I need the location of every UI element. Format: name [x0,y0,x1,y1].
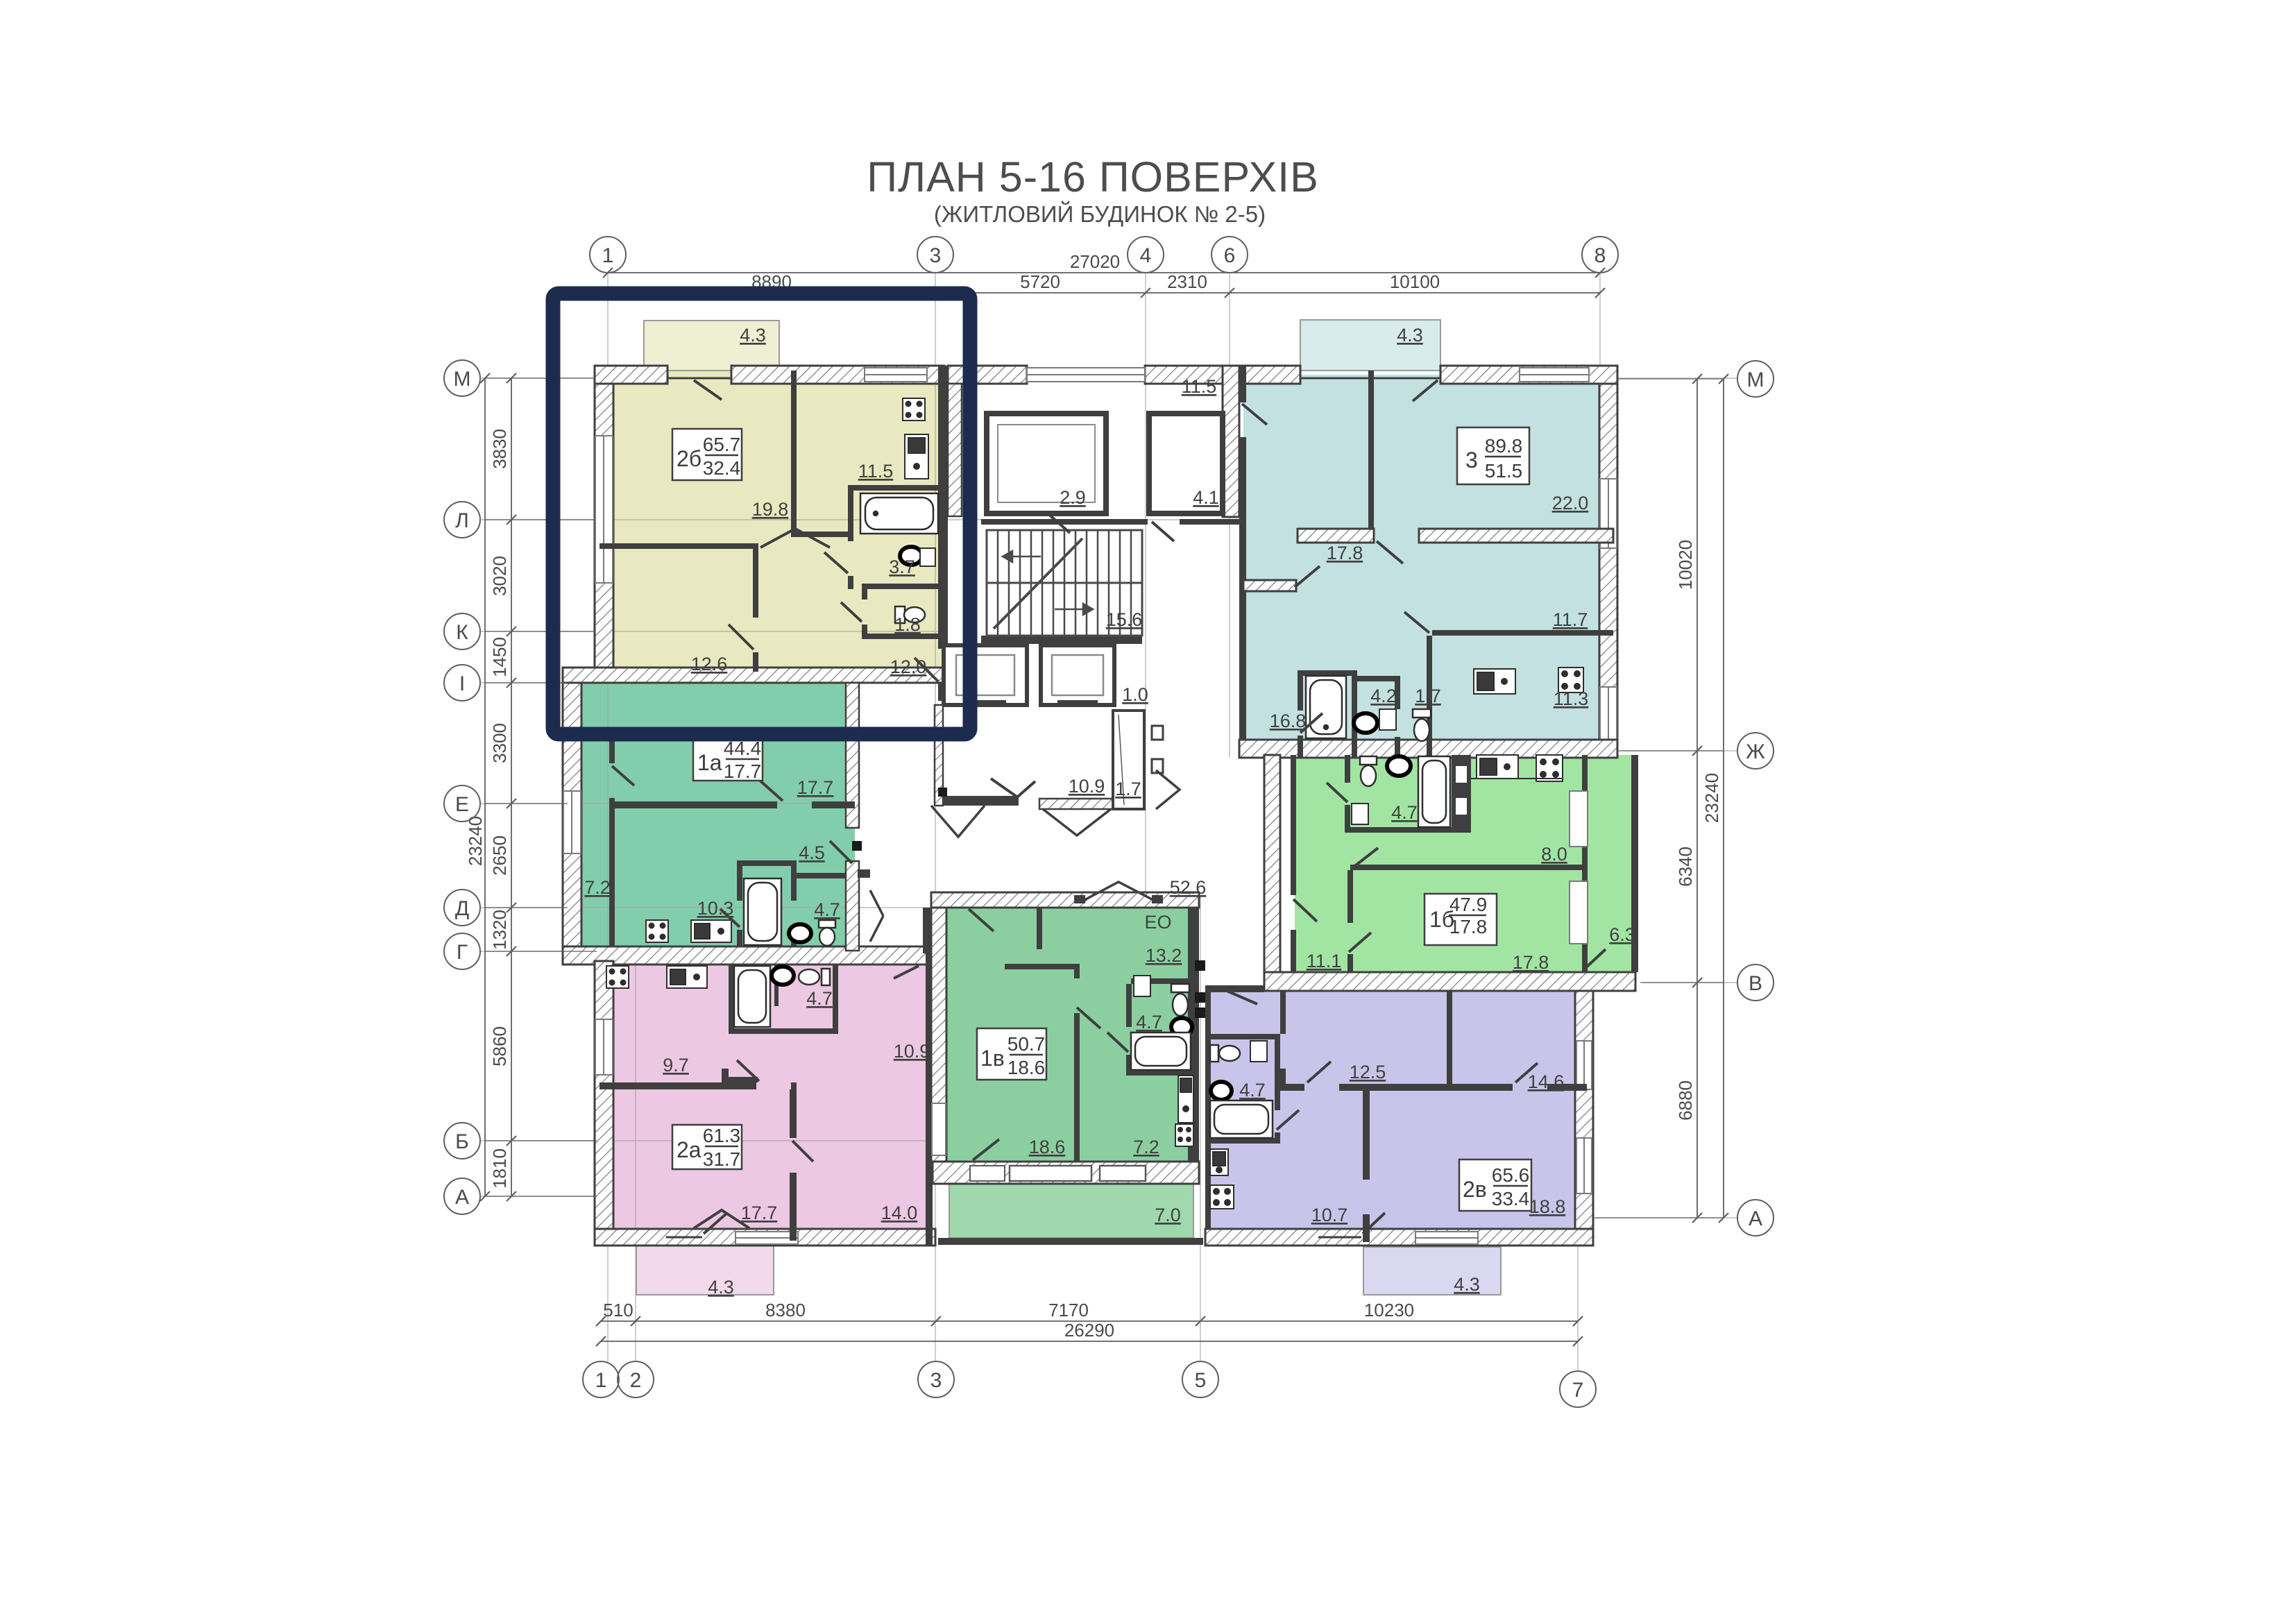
svg-text:11.1: 11.1 [1307,951,1342,971]
svg-text:4.3: 4.3 [708,1277,734,1298]
svg-text:3: 3 [930,244,942,267]
svg-text:4.3: 4.3 [1397,325,1423,346]
svg-text:11.5: 11.5 [1182,376,1217,397]
svg-text:Д: Д [455,897,469,920]
svg-text:В: В [1749,972,1762,995]
svg-text:1450: 1450 [489,637,510,677]
svg-text:4.2: 4.2 [1370,686,1397,706]
svg-text:17.8: 17.8 [1327,543,1363,563]
svg-text:3.7: 3.7 [889,556,915,577]
svg-text:10.7: 10.7 [1311,1205,1348,1225]
svg-text:Ж: Ж [1746,740,1765,763]
svg-text:1.7: 1.7 [1115,779,1141,799]
svg-text:65.7: 65.7 [703,434,741,455]
svg-text:3: 3 [1465,448,1478,473]
svg-text:32.4: 32.4 [703,457,741,479]
svg-text:18.8: 18.8 [1529,1196,1566,1217]
svg-text:26290: 26290 [1064,1320,1114,1341]
svg-text:52.6: 52.6 [1170,877,1207,898]
svg-text:16.8: 16.8 [1270,711,1307,731]
svg-text:6340: 6340 [1675,847,1696,887]
svg-text:Б: Б [455,1130,469,1153]
svg-text:4.7: 4.7 [1391,802,1418,823]
svg-text:89.8: 89.8 [1485,435,1523,457]
svg-text:10230: 10230 [1364,1300,1414,1320]
svg-text:2650: 2650 [489,835,510,876]
svg-text:2б: 2б [677,446,701,471]
svg-text:1810: 1810 [489,1148,510,1189]
svg-text:Г: Г [457,941,468,964]
svg-text:Е: Е [455,793,469,816]
svg-text:9.7: 9.7 [663,1055,689,1076]
svg-text:17.7: 17.7 [724,760,762,782]
svg-text:2: 2 [630,1369,642,1392]
svg-text:(ЖИТЛОВИЙ БУДИНОК № 2-5): (ЖИТЛОВИЙ БУДИНОК № 2-5) [934,201,1266,227]
svg-text:12.0: 12.0 [890,656,927,677]
svg-text:14.0: 14.0 [881,1203,918,1223]
svg-text:65.6: 65.6 [1492,1164,1530,1186]
svg-text:4.1: 4.1 [1193,487,1219,508]
svg-text:47.9: 47.9 [1449,894,1488,915]
svg-text:1.0: 1.0 [1122,684,1148,705]
svg-text:2310: 2310 [1167,271,1207,292]
svg-text:5: 5 [1195,1369,1207,1392]
svg-text:3020: 3020 [489,556,510,596]
svg-text:5860: 5860 [489,1026,510,1067]
svg-text:1.8: 1.8 [894,614,921,635]
svg-text:10.9: 10.9 [1069,776,1105,797]
svg-text:8: 8 [1595,244,1606,267]
svg-text:27020: 27020 [1070,251,1120,272]
svg-text:М: М [1747,368,1764,391]
svg-text:7.0: 7.0 [1155,1205,1181,1225]
svg-text:1320: 1320 [489,910,510,950]
svg-text:І: І [459,672,465,695]
svg-text:8380: 8380 [765,1300,806,1320]
svg-text:4.5: 4.5 [799,842,825,863]
svg-text:4.7: 4.7 [806,988,833,1009]
svg-text:31.7: 31.7 [703,1148,741,1170]
svg-text:2а: 2а [677,1137,701,1162]
svg-text:4.7: 4.7 [1136,1012,1162,1033]
svg-text:50.7: 50.7 [1007,1033,1046,1055]
svg-text:6.3: 6.3 [1609,924,1635,945]
svg-text:12.6: 12.6 [691,654,728,674]
svg-text:23240: 23240 [465,816,486,866]
svg-text:17.7: 17.7 [797,777,834,798]
svg-text:15.6: 15.6 [1106,609,1143,630]
svg-text:4: 4 [1140,244,1152,267]
svg-text:11.5: 11.5 [858,461,894,482]
svg-text:6: 6 [1224,244,1236,267]
svg-text:2.9: 2.9 [1060,487,1086,508]
svg-text:7.2: 7.2 [1133,1137,1159,1157]
svg-text:10020: 10020 [1675,540,1696,590]
svg-text:1: 1 [602,244,614,267]
svg-text:5720: 5720 [1020,271,1060,292]
svg-text:К: К [456,621,468,644]
svg-text:7170: 7170 [1048,1300,1089,1320]
svg-text:ЕО: ЕО [1144,912,1171,933]
svg-text:3830: 3830 [489,429,510,469]
svg-text:17.7: 17.7 [741,1203,778,1223]
svg-text:19.8: 19.8 [752,499,789,520]
svg-text:3: 3 [930,1369,942,1392]
svg-text:18.6: 18.6 [1007,1057,1046,1078]
svg-text:6880: 6880 [1675,1080,1696,1121]
svg-text:17.8: 17.8 [1449,916,1488,937]
svg-text:4.3: 4.3 [740,325,766,346]
svg-text:17.8: 17.8 [1513,952,1549,973]
svg-text:4.3: 4.3 [1454,1274,1480,1295]
svg-text:1: 1 [595,1369,607,1392]
svg-text:1а: 1а [697,750,722,775]
svg-text:Л: Л [455,509,469,532]
svg-text:1.7: 1.7 [1415,686,1441,706]
svg-text:12.5: 12.5 [1350,1062,1386,1082]
svg-text:11.7: 11.7 [1553,609,1588,630]
svg-text:4.7: 4.7 [1239,1080,1266,1101]
svg-text:51.5: 51.5 [1485,460,1523,482]
svg-text:10100: 10100 [1390,271,1440,292]
svg-text:7.2: 7.2 [584,877,611,898]
svg-text:3300: 3300 [489,723,510,763]
svg-text:А: А [1749,1207,1762,1230]
svg-text:ПЛАН 5-16 ПОВЕРХІВ: ПЛАН 5-16 ПОВЕРХІВ [867,153,1319,201]
svg-text:1в: 1в [980,1046,1005,1071]
svg-text:4.7: 4.7 [814,899,840,920]
svg-text:8.0: 8.0 [1541,844,1567,865]
svg-text:61.3: 61.3 [703,1125,741,1146]
svg-text:7: 7 [1572,1379,1584,1402]
svg-text:18.6: 18.6 [1029,1137,1066,1157]
svg-text:10.9: 10.9 [894,1041,930,1062]
svg-text:23240: 23240 [1701,773,1722,823]
svg-text:510: 510 [603,1300,633,1320]
svg-text:22.0: 22.0 [1552,493,1589,513]
svg-text:33.4: 33.4 [1492,1188,1530,1209]
svg-text:2в: 2в [1463,1177,1487,1202]
svg-text:А: А [455,1186,469,1209]
svg-text:11.3: 11.3 [1554,688,1589,709]
svg-text:13.2: 13.2 [1146,945,1182,966]
svg-text:14.6: 14.6 [1528,1071,1565,1092]
svg-text:М: М [454,368,471,391]
svg-text:10.3: 10.3 [697,898,734,919]
